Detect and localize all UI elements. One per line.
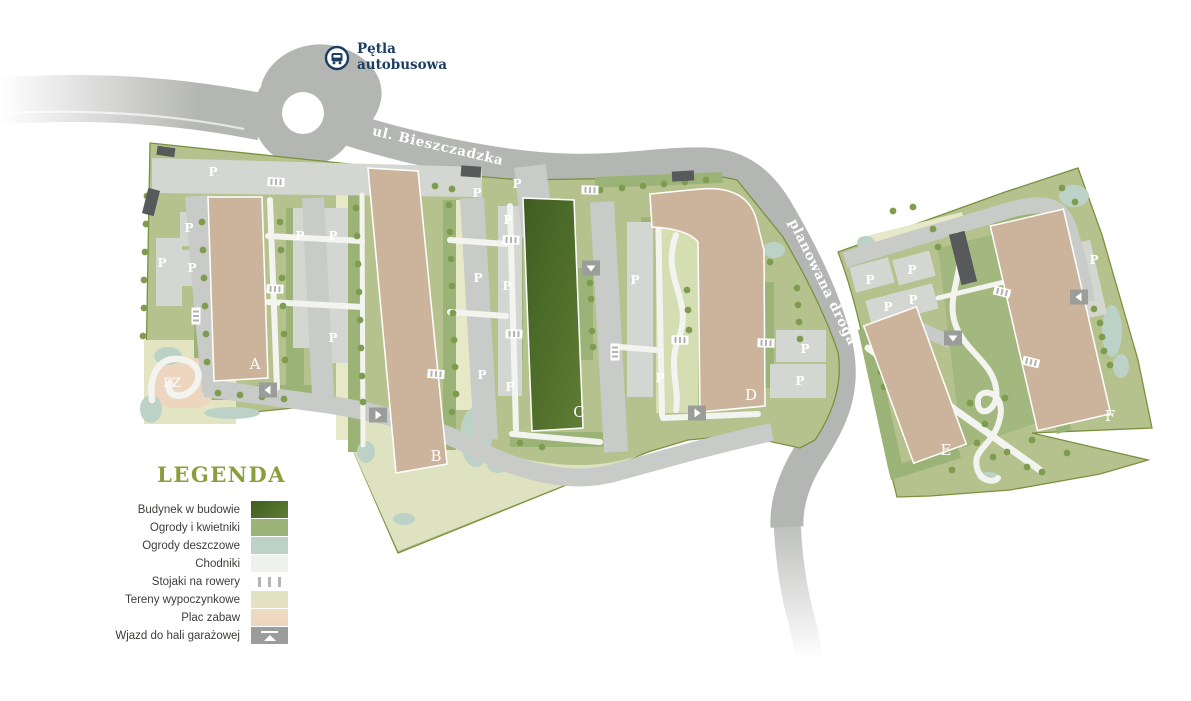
tree-icon: [204, 359, 211, 366]
bike-rack-icon: [192, 308, 201, 325]
garage-entrance-icon: [369, 408, 387, 423]
rain-garden: [204, 407, 260, 419]
bus-stop-label: Pętla: [357, 41, 396, 57]
rain-garden: [763, 242, 785, 258]
tree-icon: [357, 317, 364, 324]
parking-marker: P: [907, 263, 916, 277]
tree-icon: [1099, 334, 1106, 341]
tree-icon: [200, 247, 207, 254]
building-label: A: [249, 355, 261, 373]
tree-icon: [588, 296, 595, 303]
tree-icon: [143, 221, 150, 228]
tree-icon: [517, 440, 524, 447]
tree-icon: [1107, 362, 1114, 369]
parking-marker: P: [655, 371, 664, 385]
parking-marker: P: [505, 380, 514, 394]
tree-icon: [1024, 464, 1031, 471]
legend-item-label: Ogrody i kwietniki: [150, 522, 240, 534]
building-label: D: [745, 386, 757, 404]
tree-icon: [282, 357, 289, 364]
tree-icon: [685, 307, 692, 314]
tree-icon: [432, 183, 439, 190]
parking-marker: P: [630, 273, 639, 287]
garage-entrance-icon: [259, 383, 277, 398]
tree-icon: [237, 392, 244, 399]
bike-rack-icon: [671, 335, 688, 345]
legend-item: Ogrody i kwietniki: [138, 519, 288, 536]
tree-icon: [453, 391, 460, 398]
parking-marker: P: [473, 271, 482, 285]
tree-icon: [974, 440, 981, 447]
tree-icon: [767, 259, 774, 266]
bus-stop-label: autobusowa: [357, 57, 447, 73]
tree-icon: [1039, 469, 1046, 476]
legend-item: Tereny wypoczynkowe: [138, 591, 288, 608]
legend-item-label: Ogrody deszczowe: [142, 540, 240, 552]
tree-icon: [281, 331, 288, 338]
rain-garden: [357, 441, 375, 463]
garage-entrance-icon: [1070, 290, 1088, 305]
legend-swatch-playground: [251, 609, 288, 626]
tree-icon: [355, 261, 362, 268]
tree-icon: [449, 409, 456, 416]
building-a: [208, 197, 268, 381]
legend: LEGENDA Budynek w budowieOgrody i kwietn…: [138, 462, 288, 645]
bike-rack-icon: [427, 369, 445, 379]
parking-marker: P: [328, 331, 337, 345]
tree-icon: [1072, 199, 1079, 206]
tree-icon: [278, 247, 285, 254]
tree-icon: [449, 283, 456, 290]
tree-icon: [203, 331, 210, 338]
building-c-construction: [523, 198, 583, 431]
tree-icon: [590, 344, 597, 351]
tree-icon: [356, 289, 363, 296]
legend-item-label: Wjazd do hali garażowej: [115, 630, 240, 642]
legend-swatch-construction: [251, 501, 288, 518]
tree-icon: [661, 181, 668, 188]
parking-marker: P: [800, 342, 809, 356]
legend-items: Budynek w budowieOgrody i kwietnikiOgrod…: [138, 501, 288, 644]
building-label: C: [573, 403, 584, 421]
bike-rack-icon: [581, 185, 598, 195]
tree-icon: [539, 444, 546, 451]
legend-title: LEGENDA: [138, 462, 288, 487]
roundabout-island: [282, 92, 324, 134]
tree-icon: [452, 364, 459, 371]
bus-icon: [326, 47, 348, 69]
tree-icon: [684, 287, 691, 294]
parking-marker: P: [865, 273, 874, 287]
tree-icon: [277, 219, 284, 226]
parking-marker: P: [184, 221, 193, 235]
site-areas: [140, 143, 1152, 553]
tree-icon: [1002, 395, 1009, 402]
legend-item: Wjazd do hali garażowej: [138, 627, 288, 644]
tree-icon: [199, 219, 206, 226]
building-label: E: [941, 441, 952, 459]
tree-icon: [910, 204, 917, 211]
tree-icon: [354, 233, 361, 240]
tree-icon: [890, 208, 897, 215]
tree-icon: [142, 249, 149, 256]
parking-marker: P: [512, 177, 521, 191]
parking-marker: P: [477, 368, 486, 382]
tree-icon: [967, 400, 974, 407]
bike-rack-icon: [267, 177, 284, 187]
tree-icon: [449, 186, 456, 193]
bike-rack-icon: [266, 284, 283, 294]
tree-icon: [930, 226, 937, 233]
tree-icon: [360, 399, 367, 406]
tree-icon: [1064, 450, 1071, 457]
tree-icon: [202, 303, 209, 310]
legend-item: Stojaki na rowery: [138, 573, 288, 590]
tree-icon: [451, 337, 458, 344]
tree-icon: [447, 229, 454, 236]
tree-icon: [359, 373, 366, 380]
tree-icon: [949, 467, 956, 474]
bike-rack-icon: [502, 235, 519, 245]
garage-entrance-icon: [582, 261, 600, 276]
tree-icon: [640, 183, 647, 190]
legend-swatch-bikes: [251, 573, 288, 590]
legend-item: Plac zabaw: [138, 609, 288, 626]
tree-icon: [589, 328, 596, 335]
tree-icon: [686, 327, 693, 334]
legend-item-label: Tereny wypoczynkowe: [125, 594, 240, 606]
tree-icon: [141, 305, 148, 312]
tree-icon: [201, 275, 208, 282]
parking-marker: P: [328, 229, 337, 243]
legend-swatch-rain: [251, 537, 288, 554]
legend-item-label: Stojaki na rowery: [152, 576, 240, 588]
building-label: F: [1105, 407, 1115, 425]
tree-icon: [990, 454, 997, 461]
tree-icon: [281, 396, 288, 403]
tree-icon: [796, 319, 803, 326]
legend-item-label: Chodniki: [195, 558, 240, 570]
tree-icon: [280, 303, 287, 310]
tree-icon: [619, 185, 626, 192]
tree-icon: [795, 302, 802, 309]
tree-icon: [1091, 306, 1098, 313]
garage-entrance-icon: [944, 331, 962, 346]
legend-item-label: Budynek w budowie: [138, 504, 240, 516]
legend-item-label: Plac zabaw: [181, 612, 240, 624]
tree-icon: [1101, 348, 1108, 355]
parking-marker: P: [503, 213, 512, 227]
tree-icon: [141, 277, 148, 284]
tree-icon: [448, 256, 455, 263]
site-plan-page: PPPPPPPPPPPPPPPPPPPPPPP ABCDEFPZ ul. Bie…: [0, 0, 1191, 701]
bike-rack-icon: [505, 329, 522, 339]
parking-marker: P: [908, 293, 917, 307]
tree-icon: [1004, 449, 1011, 456]
building-label: B: [430, 447, 441, 465]
parking-marker: P: [208, 165, 217, 179]
tree-icon: [279, 275, 286, 282]
parking-marker: P: [883, 300, 892, 314]
bike-rack-icon: [757, 338, 774, 348]
tree-icon: [140, 333, 147, 340]
legend-item: Chodniki: [138, 555, 288, 572]
tree-icon: [450, 310, 457, 317]
playground-label: PZ: [163, 376, 181, 391]
rain-garden: [393, 513, 415, 525]
tree-icon: [446, 202, 453, 209]
legend-item: Budynek w budowie: [138, 501, 288, 518]
legend-swatch-paths: [251, 555, 288, 572]
road-planned-fade: [787, 518, 809, 658]
tree-icon: [1029, 437, 1036, 444]
tree-icon: [587, 280, 594, 287]
parking-marker: P: [472, 186, 481, 200]
legend-swatch-gardens: [251, 519, 288, 536]
tree-icon: [794, 285, 801, 292]
legend-swatch-garage: [251, 627, 288, 644]
parking-marker: P: [502, 279, 511, 293]
tree-icon: [982, 421, 989, 428]
legend-swatch-leisure: [251, 591, 288, 608]
tree-icon: [1097, 320, 1104, 327]
legend-item: Ogrody deszczowe: [138, 537, 288, 554]
garage-entrance-icon: [688, 406, 706, 421]
tree-icon: [215, 390, 222, 397]
tree-icon: [1059, 185, 1066, 192]
parking-marker: P: [295, 229, 304, 243]
tree-icon: [353, 205, 360, 212]
rain-garden: [1113, 354, 1129, 378]
parking-marker: P: [187, 261, 196, 275]
bike-rack-icon: [611, 344, 620, 361]
parking-marker: P: [1089, 253, 1098, 267]
parking-marker: P: [795, 374, 804, 388]
tree-icon: [358, 345, 365, 352]
tree-icon: [703, 177, 710, 184]
parking-marker: P: [157, 256, 166, 270]
tree-icon: [935, 244, 942, 251]
